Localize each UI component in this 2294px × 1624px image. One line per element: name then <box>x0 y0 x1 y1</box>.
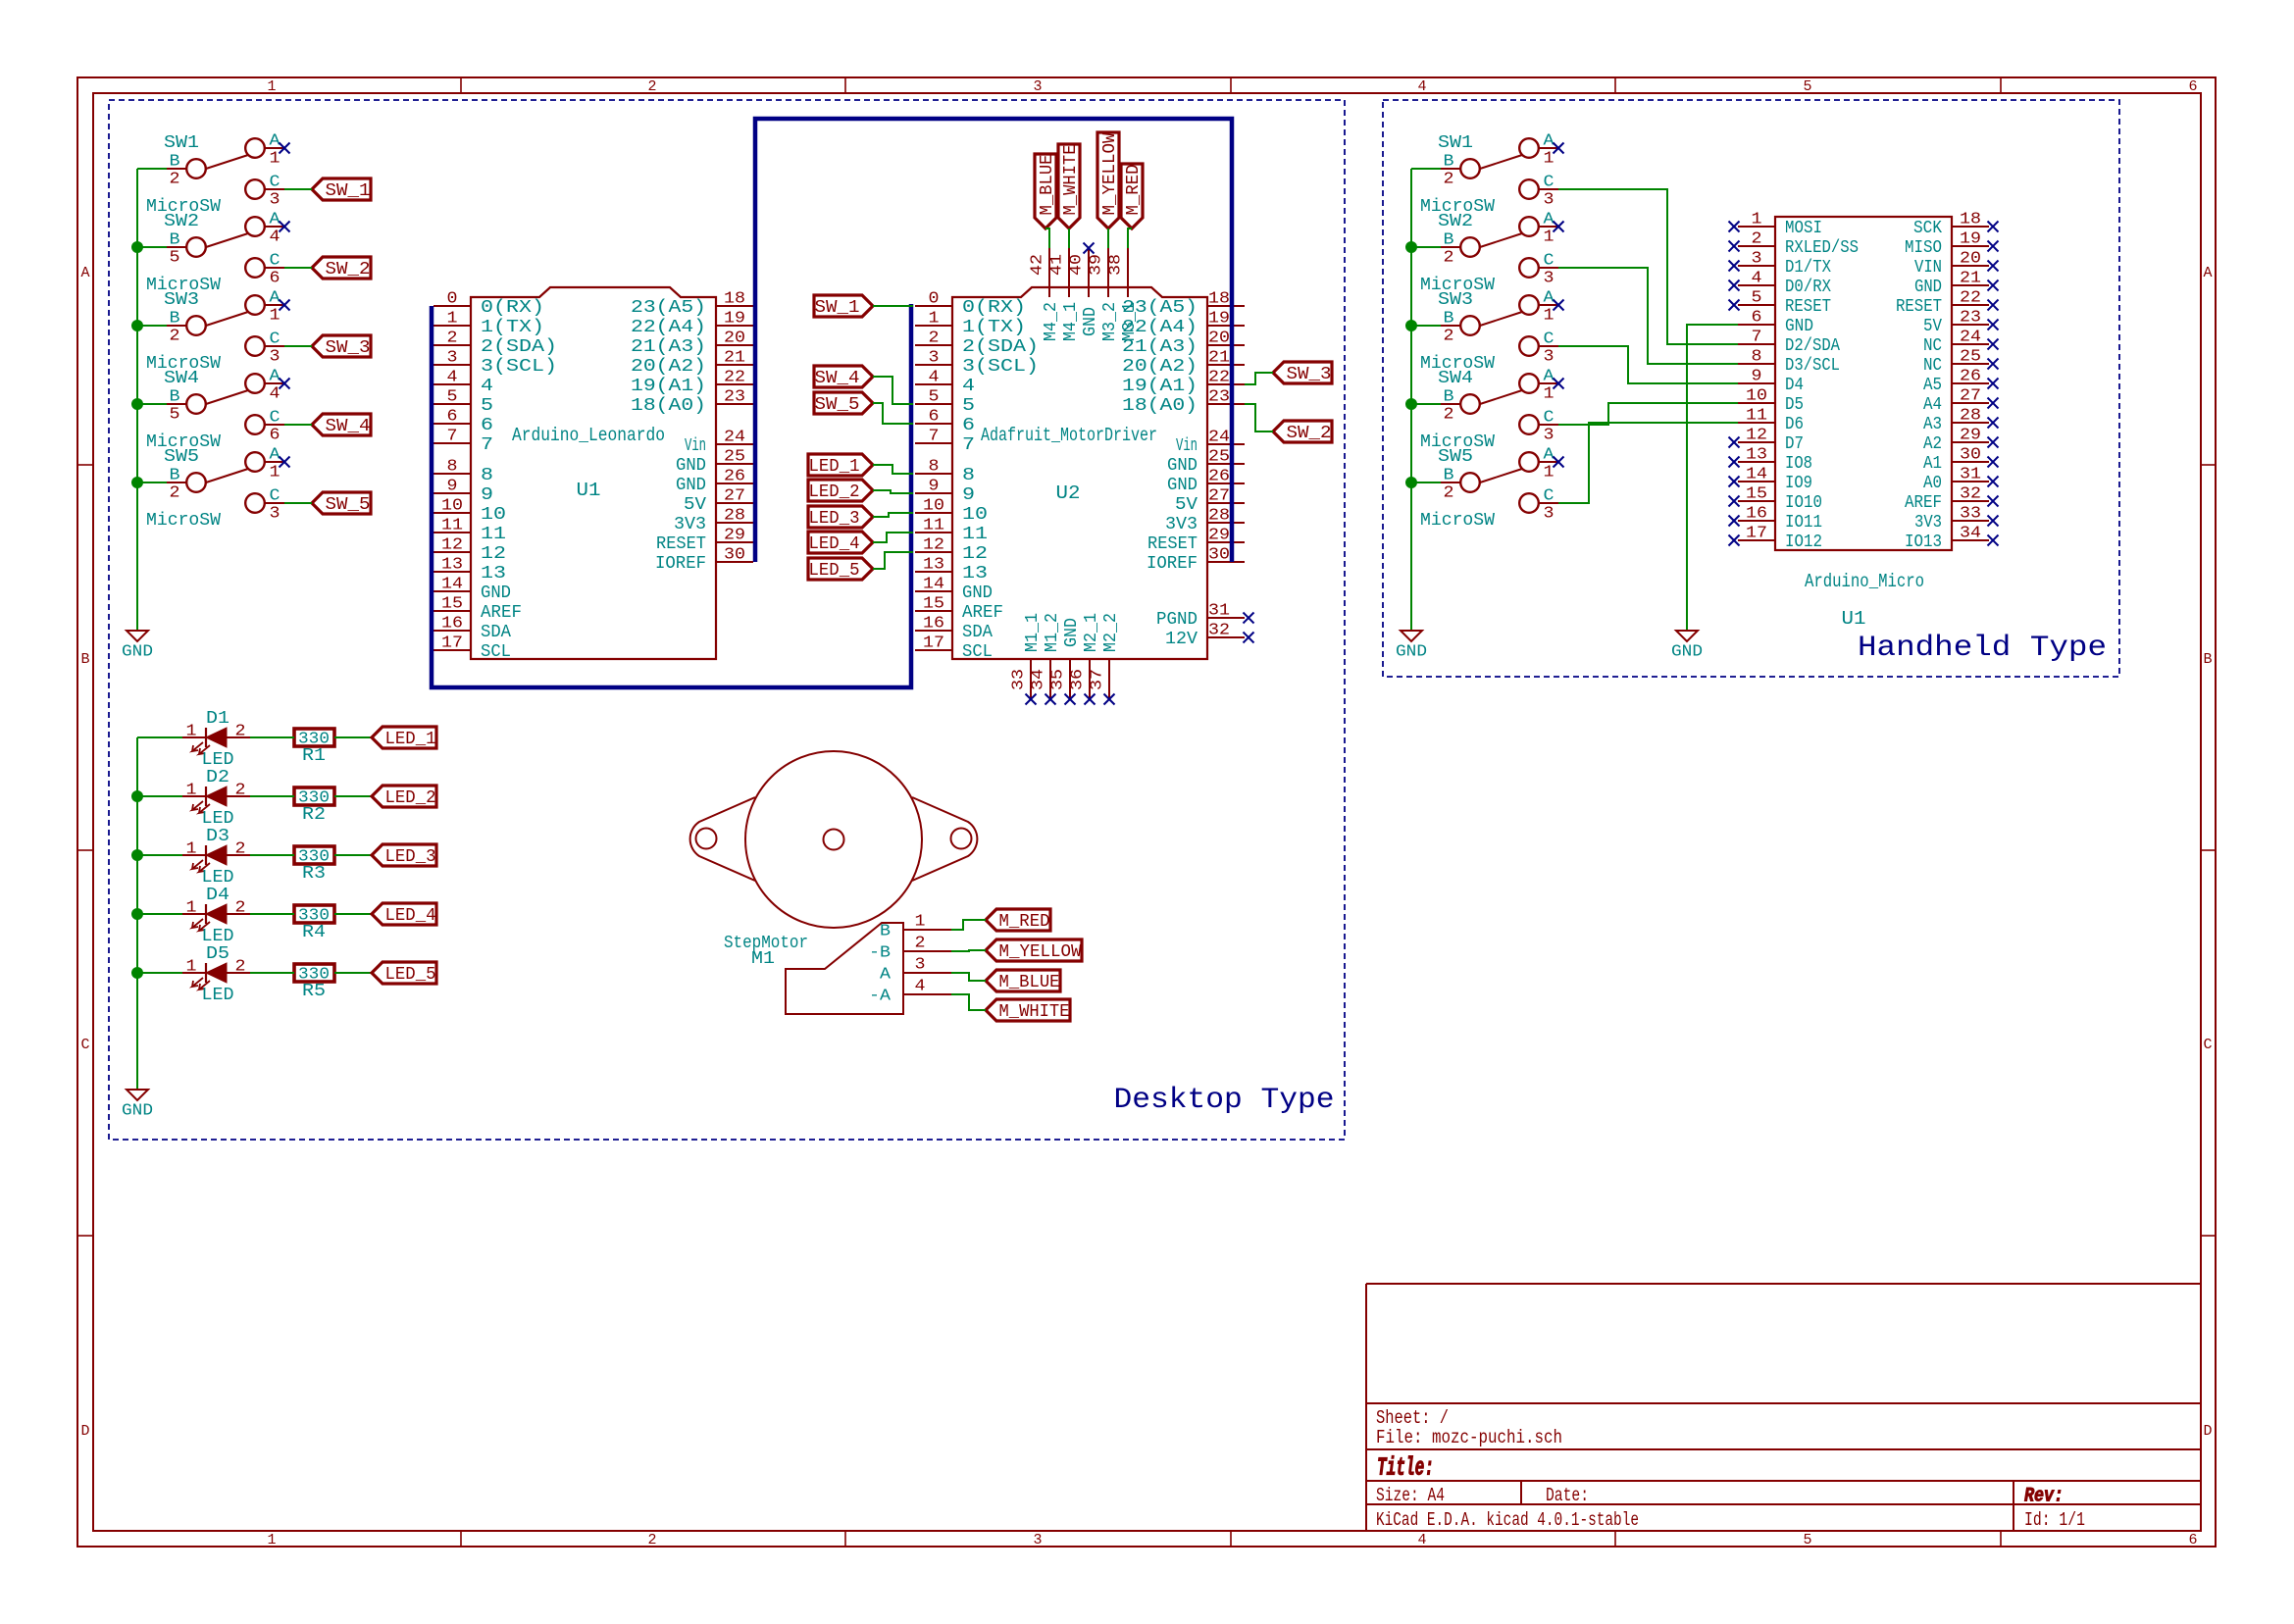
svg-text:RESET: RESET <box>1147 534 1198 554</box>
svg-text:SW2: SW2 <box>164 212 199 231</box>
svg-text:D: D <box>2203 1423 2212 1440</box>
svg-text:GND: GND <box>1081 307 1100 336</box>
svg-text:29: 29 <box>1208 527 1230 545</box>
svg-text:20: 20 <box>1960 250 1981 269</box>
svg-text:AREF: AREF <box>481 603 522 623</box>
svg-text:8: 8 <box>447 458 458 477</box>
svg-text:D3: D3 <box>206 827 229 846</box>
svg-text:13: 13 <box>481 564 506 584</box>
svg-text:21: 21 <box>724 349 745 368</box>
svg-text:M_WHITE: M_WHITE <box>1061 145 1081 216</box>
svg-text:6: 6 <box>481 416 493 435</box>
svg-text:26: 26 <box>1208 468 1230 486</box>
svg-text:LED_4: LED_4 <box>809 534 860 554</box>
svg-text:16: 16 <box>441 615 463 634</box>
svg-text:SDA: SDA <box>962 623 993 642</box>
svg-text:28: 28 <box>1208 507 1230 526</box>
svg-text:-A: -A <box>869 988 892 1006</box>
svg-text:17: 17 <box>1746 525 1767 543</box>
svg-text:39: 39 <box>1088 254 1106 276</box>
svg-text:SW_5: SW_5 <box>326 495 371 515</box>
svg-text:41: 41 <box>1048 254 1067 276</box>
svg-text:5: 5 <box>1803 1532 1811 1548</box>
svg-text:3V3: 3V3 <box>674 515 706 534</box>
svg-text:A: A <box>80 265 89 281</box>
svg-text:13: 13 <box>923 556 944 575</box>
svg-text:R2: R2 <box>302 805 326 825</box>
svg-text:25: 25 <box>724 448 745 467</box>
svg-text:-B: -B <box>869 944 891 963</box>
svg-text:3: 3 <box>1544 270 1555 288</box>
svg-text:Desktop Type: Desktop Type <box>1114 1084 1335 1117</box>
svg-text:GND: GND <box>676 476 706 495</box>
svg-text:28: 28 <box>1960 407 1981 426</box>
svg-text:M_WHITE: M_WHITE <box>999 1002 1070 1022</box>
svg-text:25: 25 <box>1960 348 1981 367</box>
svg-text:4: 4 <box>929 369 940 387</box>
svg-text:M3_2: M3_2 <box>1100 302 1120 341</box>
svg-text:C: C <box>270 409 280 428</box>
svg-text:SW3: SW3 <box>1438 290 1473 310</box>
svg-text:3: 3 <box>1544 427 1555 445</box>
svg-text:33: 33 <box>1960 505 1981 524</box>
svg-text:Sheet: /: Sheet: / <box>1376 1407 1449 1429</box>
svg-text:R3: R3 <box>302 864 326 884</box>
svg-text:3: 3 <box>270 505 280 524</box>
svg-text:1: 1 <box>267 1532 276 1548</box>
svg-text:IOREF: IOREF <box>655 554 706 574</box>
svg-text:3: 3 <box>1752 250 1762 269</box>
svg-text:6: 6 <box>270 427 280 445</box>
svg-text:0(RX): 0(RX) <box>481 298 544 318</box>
svg-text:B: B <box>170 153 180 172</box>
svg-text:3: 3 <box>447 349 458 368</box>
svg-text:IO10: IO10 <box>1785 493 1822 513</box>
svg-text:31: 31 <box>1960 466 1981 484</box>
svg-text:A: A <box>270 289 281 308</box>
svg-text:MicroSW: MicroSW <box>146 511 221 531</box>
svg-text:14: 14 <box>1746 466 1767 484</box>
svg-text:5: 5 <box>170 249 180 268</box>
svg-text:0(RX): 0(RX) <box>962 298 1026 318</box>
svg-text:2(SDA): 2(SDA) <box>481 337 557 357</box>
svg-text:0: 0 <box>447 290 458 309</box>
svg-text:AREF: AREF <box>962 603 1003 623</box>
svg-text:Arduino_Leonardo: Arduino_Leonardo <box>512 425 665 446</box>
svg-text:M4_2: M4_2 <box>1042 302 1061 341</box>
svg-text:27: 27 <box>724 487 745 506</box>
svg-text:D1/TX: D1/TX <box>1785 258 1831 278</box>
svg-text:5: 5 <box>447 388 458 407</box>
svg-text:3(SCL): 3(SCL) <box>962 357 1039 377</box>
svg-text:SW_2: SW_2 <box>1287 424 1332 443</box>
svg-text:M_BLUE: M_BLUE <box>999 973 1060 992</box>
svg-text:3: 3 <box>915 956 926 975</box>
svg-text:6: 6 <box>1752 309 1762 328</box>
svg-text:3V3: 3V3 <box>1914 513 1942 533</box>
svg-text:30: 30 <box>724 546 745 565</box>
svg-text:M_RED: M_RED <box>999 912 1050 932</box>
svg-text:D1: D1 <box>206 709 229 729</box>
svg-text:SW2: SW2 <box>1438 212 1473 231</box>
svg-text:10: 10 <box>923 497 944 516</box>
svg-text:C: C <box>2203 1037 2212 1053</box>
svg-text:Size: A4: Size: A4 <box>1376 1485 1445 1506</box>
svg-text:GND: GND <box>1914 278 1942 297</box>
svg-text:1: 1 <box>1544 307 1555 326</box>
svg-text:LED_3: LED_3 <box>385 847 436 867</box>
svg-text:A5: A5 <box>1923 376 1942 395</box>
svg-text:27: 27 <box>1960 387 1981 406</box>
svg-text:MicroSW: MicroSW <box>1420 511 1495 531</box>
svg-text:Title:: Title: <box>1377 1453 1434 1483</box>
svg-text:C: C <box>1544 487 1555 506</box>
svg-text:IO9: IO9 <box>1785 474 1812 493</box>
svg-text:18: 18 <box>1960 211 1981 229</box>
svg-text:4: 4 <box>1752 270 1762 288</box>
svg-text:B: B <box>170 467 180 485</box>
svg-text:C: C <box>270 487 280 506</box>
svg-text:B: B <box>1444 153 1454 172</box>
svg-text:16: 16 <box>923 615 944 634</box>
svg-text:LED: LED <box>202 809 234 829</box>
svg-text:1(TX): 1(TX) <box>481 318 544 337</box>
svg-text:B: B <box>1444 467 1454 485</box>
svg-text:U2: U2 <box>1056 482 1081 504</box>
svg-text:9: 9 <box>447 478 458 496</box>
svg-text:5V: 5V <box>1175 495 1198 515</box>
svg-text:11: 11 <box>923 517 944 535</box>
svg-text:8: 8 <box>962 466 975 485</box>
svg-text:14: 14 <box>923 576 944 594</box>
svg-text:IO11: IO11 <box>1785 513 1822 533</box>
svg-text:SDA: SDA <box>481 623 511 642</box>
svg-text:2: 2 <box>647 78 656 95</box>
svg-text:M4_1: M4_1 <box>1061 302 1081 341</box>
svg-text:KiCad E.D.A. kicad 4.0.1-stab: KiCad E.D.A. kicad 4.0.1-stable <box>1376 1509 1639 1531</box>
svg-text:30: 30 <box>1960 446 1981 465</box>
svg-text:GND: GND <box>676 456 706 476</box>
svg-text:A: A <box>1544 368 1555 386</box>
svg-text:IO12: IO12 <box>1785 533 1822 552</box>
svg-text:3: 3 <box>1544 348 1555 367</box>
svg-text:1: 1 <box>270 464 280 482</box>
svg-text:VIN: VIN <box>1914 258 1942 278</box>
svg-text:C: C <box>1544 252 1555 271</box>
svg-text:13: 13 <box>962 564 988 584</box>
svg-text:AREF: AREF <box>1905 493 1942 513</box>
svg-text:3: 3 <box>929 349 940 368</box>
svg-text:24: 24 <box>724 429 745 447</box>
svg-text:7: 7 <box>447 428 458 446</box>
svg-text:15: 15 <box>1746 485 1767 504</box>
svg-text:GND: GND <box>1396 643 1427 662</box>
svg-text:7: 7 <box>962 435 975 455</box>
svg-text:A: A <box>270 368 281 386</box>
svg-text:B: B <box>2203 651 2212 668</box>
svg-text:21: 21 <box>1960 270 1981 288</box>
svg-text:22(A4): 22(A4) <box>631 318 706 337</box>
svg-text:B: B <box>170 231 180 250</box>
svg-text:3: 3 <box>1544 191 1555 210</box>
svg-text:M3_1: M3_1 <box>1120 302 1140 341</box>
svg-text:M_BLUE: M_BLUE <box>1038 155 1057 216</box>
svg-text:D3/SCL: D3/SCL <box>1785 356 1840 376</box>
svg-text:SW5: SW5 <box>164 447 199 467</box>
svg-text:SCK: SCK <box>1913 219 1942 238</box>
svg-text:36: 36 <box>1069 669 1088 690</box>
svg-text:35: 35 <box>1049 669 1068 690</box>
svg-text:12: 12 <box>923 536 944 555</box>
svg-text:M2_2: M2_2 <box>1101 613 1121 652</box>
svg-text:34: 34 <box>1960 525 1981 543</box>
svg-text:2(SDA): 2(SDA) <box>962 337 1039 357</box>
svg-text:SCL: SCL <box>481 642 511 662</box>
svg-text:A4: A4 <box>1923 395 1942 415</box>
svg-text:1: 1 <box>1544 464 1555 482</box>
svg-text:A: A <box>880 966 892 985</box>
svg-text:32: 32 <box>1960 485 1981 504</box>
svg-text:4: 4 <box>481 377 493 396</box>
svg-text:2: 2 <box>1444 484 1454 503</box>
svg-text:SCL: SCL <box>962 642 993 662</box>
svg-text:2: 2 <box>1444 406 1454 425</box>
svg-text:42: 42 <box>1029 254 1047 276</box>
svg-text:SW_2: SW_2 <box>326 260 371 279</box>
svg-text:2: 2 <box>447 330 458 348</box>
svg-text:U1: U1 <box>577 480 601 501</box>
svg-text:GND: GND <box>122 643 153 662</box>
svg-text:B: B <box>1444 388 1454 407</box>
svg-text:25: 25 <box>1208 448 1230 467</box>
svg-text:1: 1 <box>270 307 280 326</box>
svg-text:24: 24 <box>1960 329 1981 347</box>
svg-text:Vin: Vin <box>1176 436 1198 456</box>
svg-text:A1: A1 <box>1923 454 1942 474</box>
svg-text:9: 9 <box>929 478 940 496</box>
svg-text:D4: D4 <box>1785 376 1804 395</box>
svg-text:NC: NC <box>1923 336 1942 356</box>
svg-text:SW3: SW3 <box>164 290 199 310</box>
svg-text:C: C <box>1544 174 1555 192</box>
svg-text:6: 6 <box>929 408 940 427</box>
svg-text:LED: LED <box>202 750 234 770</box>
svg-text:GND: GND <box>1167 476 1198 495</box>
svg-text:2: 2 <box>647 1532 656 1548</box>
svg-text:A: A <box>1544 132 1555 151</box>
svg-text:LED_2: LED_2 <box>809 482 860 502</box>
svg-text:SW_3: SW_3 <box>326 338 371 358</box>
svg-text:15: 15 <box>923 595 944 614</box>
svg-text:3V3: 3V3 <box>1165 515 1198 534</box>
svg-text:18(A0): 18(A0) <box>1122 396 1198 416</box>
svg-text:2: 2 <box>170 484 180 503</box>
svg-text:M1_2: M1_2 <box>1043 613 1062 652</box>
svg-text:SW5: SW5 <box>1438 447 1473 467</box>
svg-text:GND: GND <box>1785 317 1813 336</box>
svg-text:19(A1): 19(A1) <box>1122 377 1198 396</box>
svg-text:24: 24 <box>1208 429 1230 447</box>
svg-text:2: 2 <box>1752 230 1762 249</box>
svg-text:10: 10 <box>962 505 988 525</box>
svg-text:LED_1: LED_1 <box>385 730 436 749</box>
svg-text:M_YELLOW: M_YELLOW <box>1100 132 1120 215</box>
svg-text:1: 1 <box>447 310 458 329</box>
svg-text:2: 2 <box>170 171 180 189</box>
svg-text:3: 3 <box>270 348 280 367</box>
svg-text:GND: GND <box>1062 618 1082 647</box>
svg-text:9: 9 <box>1752 368 1762 386</box>
svg-text:21(A3): 21(A3) <box>631 337 706 357</box>
svg-text:NC: NC <box>1923 356 1942 376</box>
svg-text:R4: R4 <box>302 923 326 942</box>
svg-text:Date:: Date: <box>1546 1485 1589 1506</box>
svg-text:16: 16 <box>1746 505 1767 524</box>
svg-text:4: 4 <box>915 978 926 996</box>
svg-text:C: C <box>1544 330 1555 349</box>
svg-text:6: 6 <box>270 270 280 288</box>
svg-text:2: 2 <box>915 935 926 953</box>
svg-text:D6: D6 <box>1785 415 1804 434</box>
svg-text:4: 4 <box>1417 78 1426 95</box>
svg-text:D5: D5 <box>1785 395 1804 415</box>
svg-text:D2: D2 <box>206 768 229 787</box>
svg-text:5V: 5V <box>684 495 706 515</box>
svg-text:LED_1: LED_1 <box>809 457 860 477</box>
svg-text:10: 10 <box>481 505 506 525</box>
svg-text:4: 4 <box>447 369 458 387</box>
svg-text:19: 19 <box>724 310 745 329</box>
svg-text:A: A <box>270 211 281 229</box>
svg-text:RESET: RESET <box>1785 297 1831 317</box>
svg-text:2: 2 <box>170 328 180 346</box>
svg-text:11: 11 <box>962 525 988 544</box>
svg-text:File: mozc-puchi.sch: File: mozc-puchi.sch <box>1376 1427 1562 1448</box>
svg-text:8: 8 <box>929 458 940 477</box>
svg-text:38: 38 <box>1107 254 1126 276</box>
svg-text:D0/RX: D0/RX <box>1785 278 1831 297</box>
svg-text:GND: GND <box>962 584 993 603</box>
svg-text:30: 30 <box>1208 546 1230 565</box>
svg-text:11: 11 <box>441 517 463 535</box>
svg-text:20(A2): 20(A2) <box>1122 357 1198 377</box>
svg-text:D2/SDA: D2/SDA <box>1785 336 1840 356</box>
svg-text:40: 40 <box>1068 254 1087 276</box>
svg-text:C: C <box>80 1037 89 1053</box>
svg-text:3(SCL): 3(SCL) <box>481 357 557 377</box>
svg-text:M_YELLOW: M_YELLOW <box>999 942 1082 962</box>
svg-text:9: 9 <box>481 485 493 505</box>
svg-text:LED: LED <box>202 868 234 888</box>
svg-text:6: 6 <box>2188 1532 2197 1548</box>
svg-text:13: 13 <box>1746 446 1767 465</box>
svg-text:12: 12 <box>962 544 988 564</box>
svg-text:23(A5): 23(A5) <box>631 298 706 318</box>
svg-text:10: 10 <box>1746 387 1767 406</box>
svg-text:1: 1 <box>1752 211 1762 229</box>
svg-text:21: 21 <box>1208 349 1230 368</box>
svg-text:11: 11 <box>481 525 506 544</box>
svg-text:LED_5: LED_5 <box>385 965 436 985</box>
svg-text:A0: A0 <box>1923 474 1942 493</box>
svg-text:SW_4: SW_4 <box>326 417 371 436</box>
svg-text:4: 4 <box>270 385 280 404</box>
svg-text:A: A <box>1544 446 1555 465</box>
svg-text:M_RED: M_RED <box>1124 165 1144 216</box>
svg-text:32: 32 <box>1208 622 1230 640</box>
svg-text:A: A <box>270 446 281 465</box>
svg-text:14: 14 <box>441 576 463 594</box>
svg-text:1: 1 <box>1544 150 1555 169</box>
svg-text:D7: D7 <box>1785 434 1804 454</box>
svg-text:PGND: PGND <box>1156 610 1198 630</box>
svg-text:LED: LED <box>202 986 234 1005</box>
svg-text:22: 22 <box>724 369 745 387</box>
svg-text:C: C <box>270 252 280 271</box>
svg-text:18: 18 <box>724 290 745 309</box>
svg-text:R5: R5 <box>302 982 326 1001</box>
svg-text:26: 26 <box>724 468 745 486</box>
svg-text:A3: A3 <box>1923 415 1942 434</box>
svg-text:29: 29 <box>724 527 745 545</box>
svg-text:18: 18 <box>1208 290 1230 309</box>
svg-text:Arduino_Micro: Arduino_Micro <box>1805 571 1924 592</box>
svg-text:34: 34 <box>1030 669 1048 690</box>
svg-text:4: 4 <box>270 228 280 247</box>
svg-text:B: B <box>170 388 180 407</box>
svg-text:LED_4: LED_4 <box>385 906 436 926</box>
svg-text:10: 10 <box>441 497 463 516</box>
svg-text:29: 29 <box>1960 427 1981 445</box>
svg-text:D5: D5 <box>206 944 229 964</box>
svg-text:2: 2 <box>1444 171 1454 189</box>
svg-text:22: 22 <box>1960 289 1981 308</box>
svg-text:33: 33 <box>1010 669 1029 690</box>
svg-text:SW4: SW4 <box>1438 369 1473 388</box>
svg-text:SW1: SW1 <box>164 133 199 153</box>
svg-text:5: 5 <box>1752 289 1762 308</box>
svg-text:23: 23 <box>1960 309 1981 328</box>
svg-text:B: B <box>80 651 89 668</box>
svg-text:1: 1 <box>270 150 280 169</box>
svg-text:12: 12 <box>441 536 463 555</box>
svg-text:20(A2): 20(A2) <box>631 357 706 377</box>
svg-text:5: 5 <box>929 388 940 407</box>
svg-text:5: 5 <box>481 396 493 416</box>
svg-text:C: C <box>1544 409 1555 428</box>
svg-text:1: 1 <box>1544 385 1555 404</box>
svg-text:GND: GND <box>481 584 511 603</box>
svg-text:M2_1: M2_1 <box>1082 613 1101 652</box>
svg-text:D4: D4 <box>206 886 229 905</box>
svg-text:1: 1 <box>929 310 940 329</box>
svg-text:6: 6 <box>2188 78 2197 95</box>
svg-text:M1: M1 <box>751 949 775 969</box>
svg-text:C: C <box>270 174 280 192</box>
svg-text:20: 20 <box>724 330 745 348</box>
svg-text:18(A0): 18(A0) <box>631 396 706 416</box>
svg-text:23: 23 <box>1208 388 1230 407</box>
svg-text:SW_1: SW_1 <box>326 181 371 201</box>
svg-text:B: B <box>1444 310 1454 329</box>
svg-text:C: C <box>270 330 280 349</box>
svg-text:U1: U1 <box>1842 608 1866 630</box>
svg-text:M1_1: M1_1 <box>1023 613 1043 652</box>
svg-text:1: 1 <box>915 913 926 932</box>
svg-text:SW_5: SW_5 <box>815 395 860 415</box>
svg-text:7: 7 <box>929 428 940 446</box>
svg-text:MISO: MISO <box>1905 238 1942 258</box>
